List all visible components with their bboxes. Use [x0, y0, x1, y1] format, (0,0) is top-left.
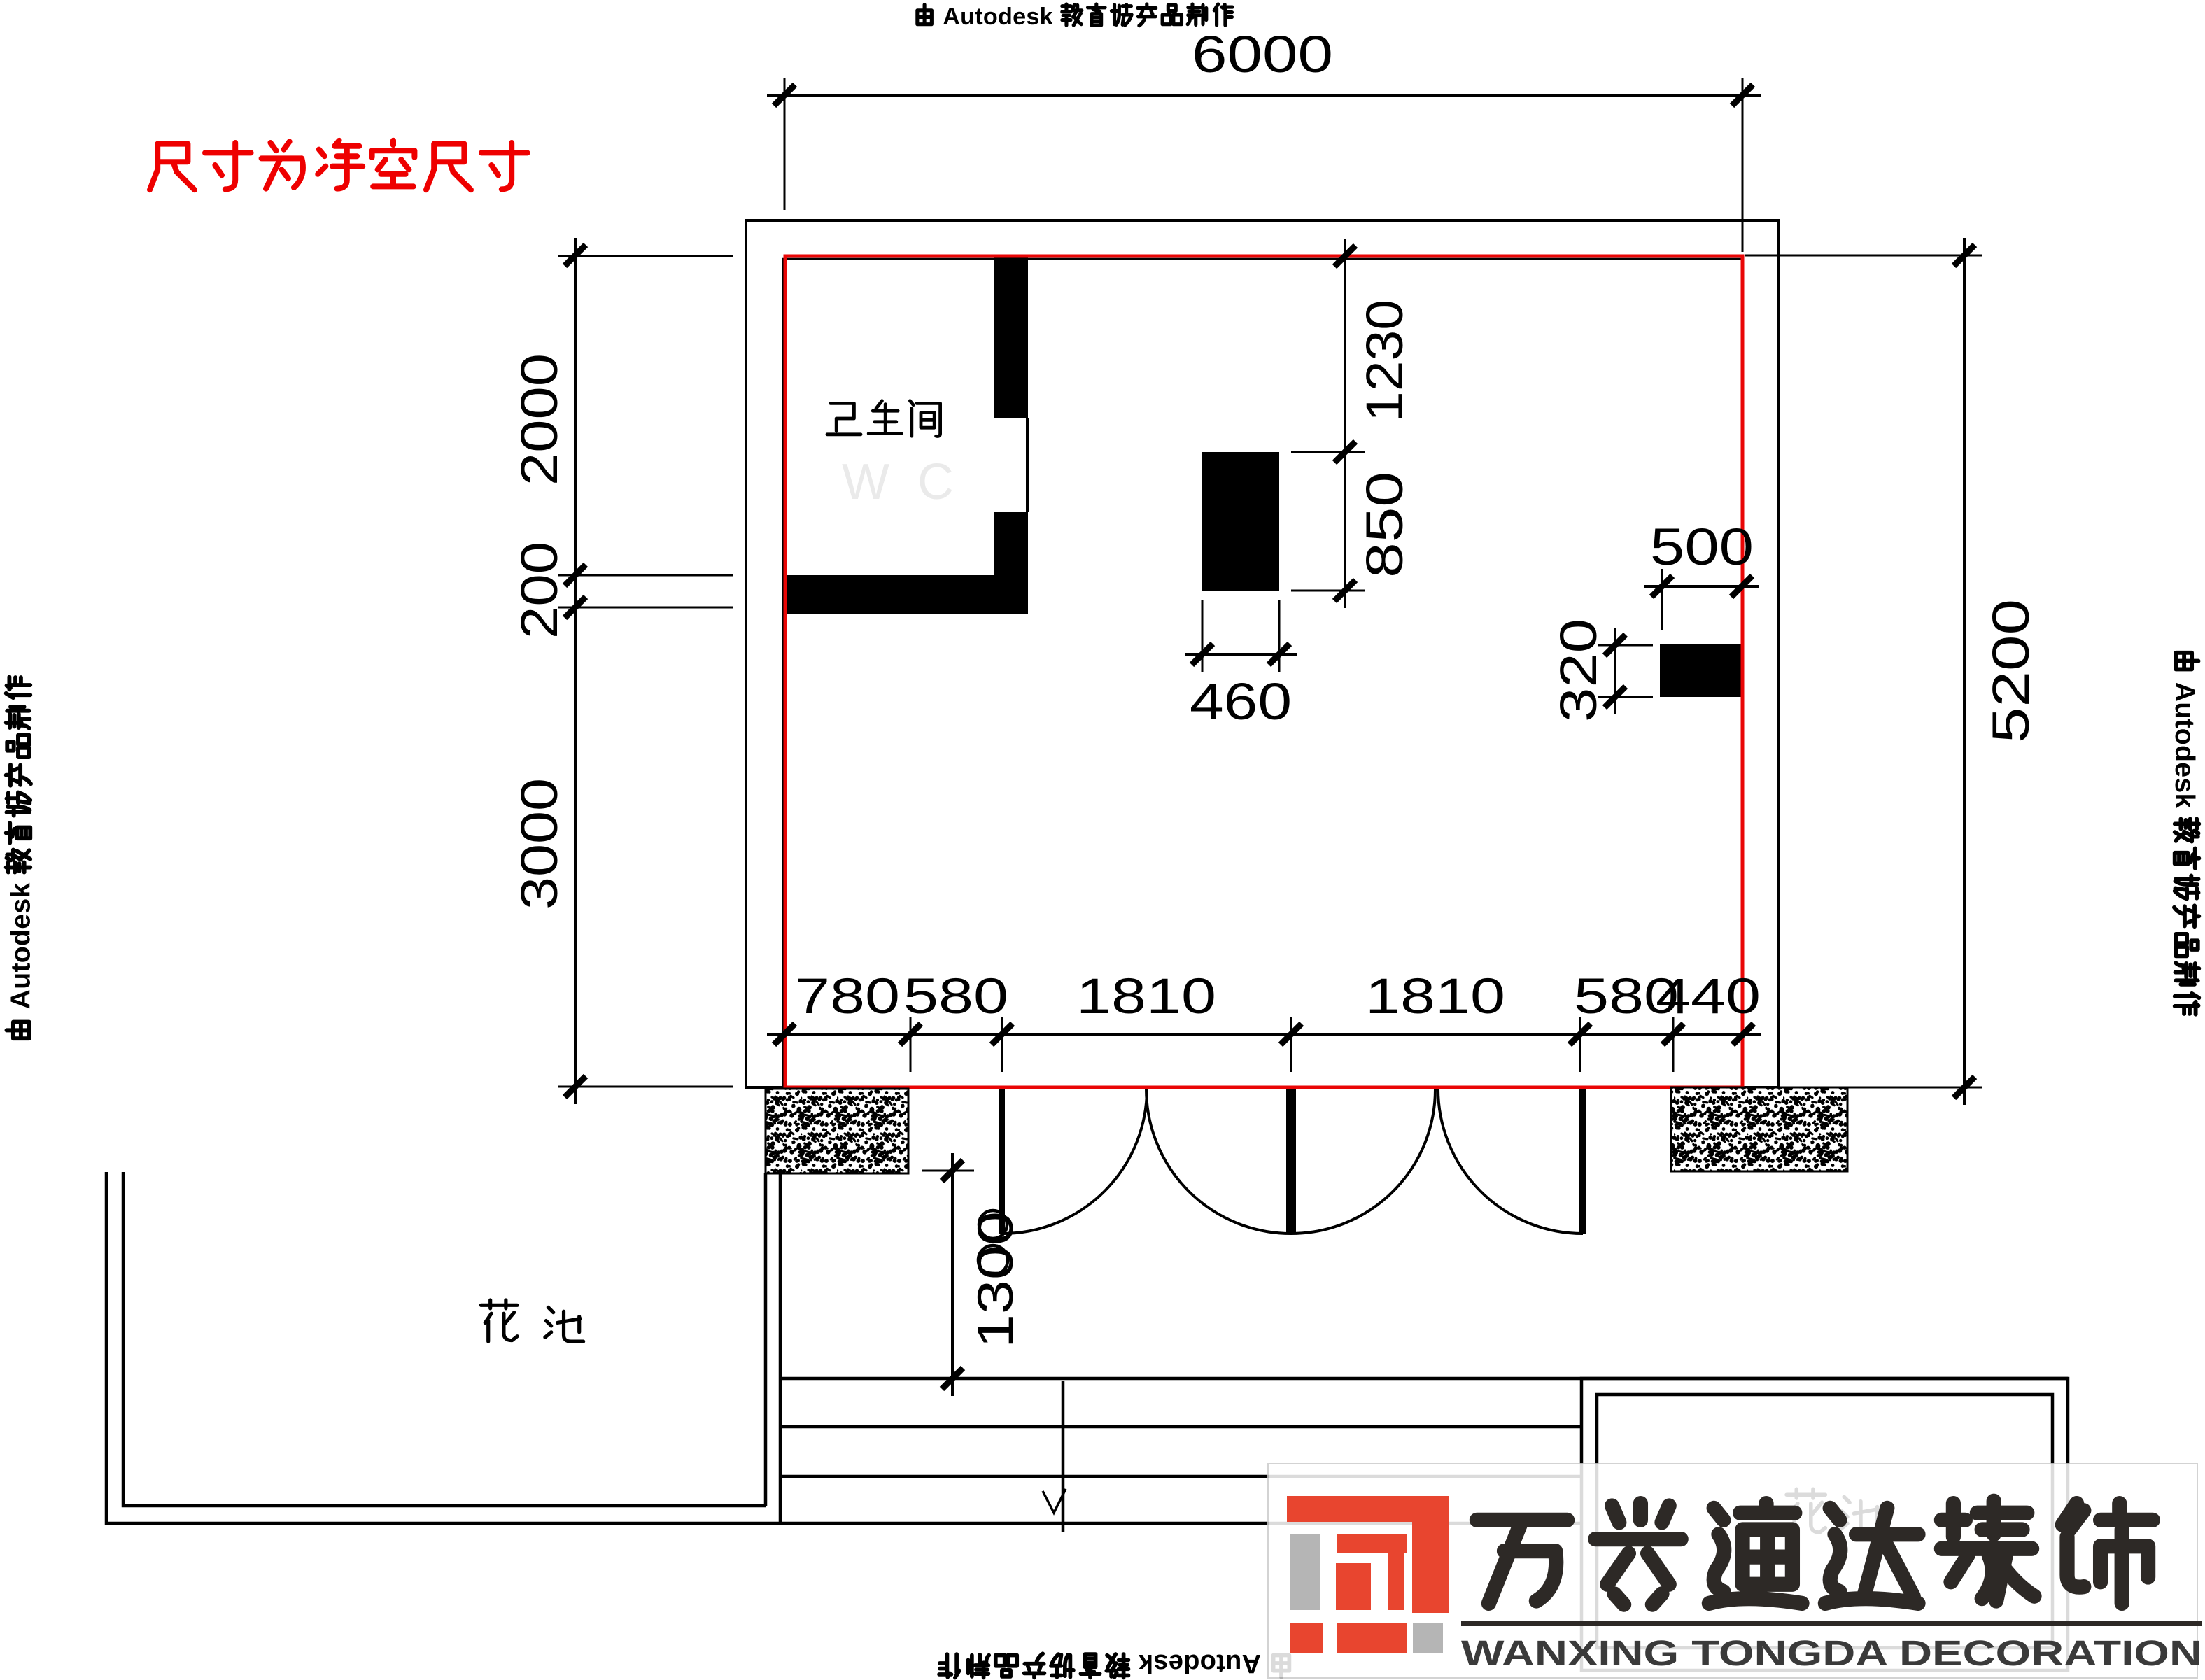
svg-text:WANXING TONGDA DECORATION: WANXING TONGDA DECORATION [1461, 1633, 2202, 1673]
svg-text:850: 850 [1355, 472, 1414, 578]
svg-text:780: 780 [795, 969, 900, 1024]
svg-text:3000: 3000 [510, 778, 568, 910]
svg-text:1810: 1810 [1365, 969, 1505, 1024]
svg-text:200: 200 [510, 542, 568, 639]
svg-text:460: 460 [1190, 672, 1292, 730]
svg-text:580: 580 [903, 969, 1008, 1024]
svg-text:1300: 1300 [968, 1211, 1024, 1348]
svg-text:W C: W C [842, 454, 961, 510]
svg-text:440: 440 [1656, 969, 1761, 1024]
svg-text:2000: 2000 [510, 353, 568, 486]
svg-text:320: 320 [1549, 619, 1607, 722]
svg-text:500: 500 [1650, 518, 1754, 576]
svg-text:1810: 1810 [1076, 969, 1216, 1024]
svg-text:1230: 1230 [1355, 299, 1414, 422]
svg-text:5200: 5200 [1982, 599, 2040, 743]
svg-text:6000: 6000 [1192, 25, 1333, 83]
